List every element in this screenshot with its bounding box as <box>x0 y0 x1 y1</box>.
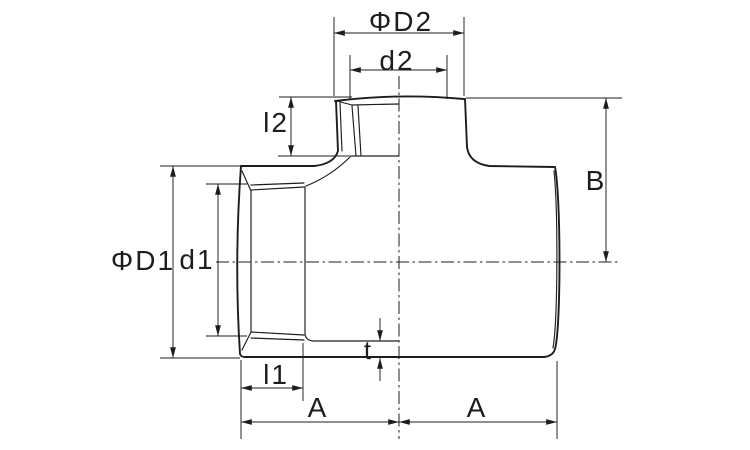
label-d1: d1 <box>179 246 214 274</box>
label-t: t <box>364 337 372 363</box>
label-phi-d2: ΦD2 <box>369 8 433 36</box>
label-a-right: A <box>467 394 488 422</box>
label-l2: l2 <box>263 109 289 137</box>
label-d2: d2 <box>379 47 414 75</box>
label-b: B <box>586 167 607 195</box>
label-phi-d1: ΦD1 <box>111 247 175 275</box>
label-a-left: A <box>308 394 329 422</box>
drawing-sheet: ΦD2 d2 l2 B ΦD1 d1 t l1 A A <box>0 0 750 450</box>
label-l1: l1 <box>263 361 289 389</box>
drawing-canvas <box>0 0 750 450</box>
